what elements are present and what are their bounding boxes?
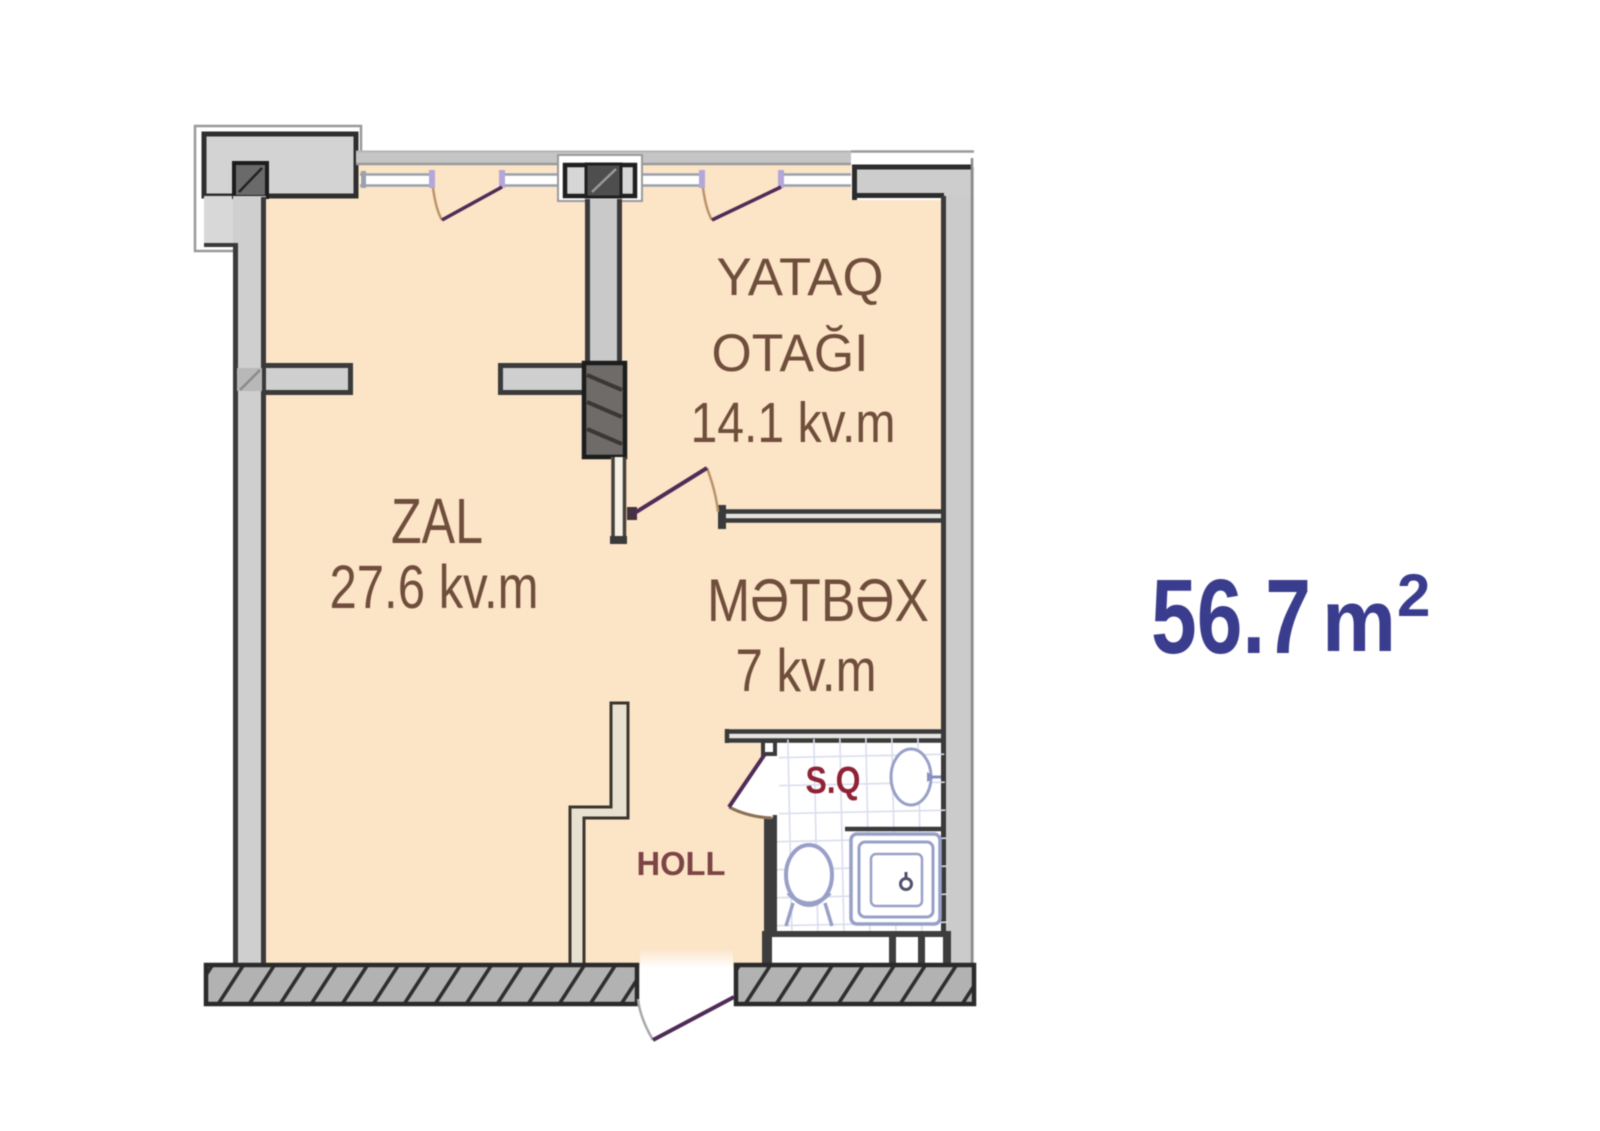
- svg-text:56.7: 56.7: [1151, 558, 1311, 676]
- svg-text:14.1 kv.m: 14.1 kv.m: [691, 391, 896, 455]
- svg-text:S.Q: S.Q: [806, 760, 861, 802]
- svg-text:7 kv.m: 7 kv.m: [736, 637, 877, 704]
- svg-text:MƏTBƏX: MƏTBƏX: [707, 567, 929, 634]
- svg-text:OTAĞI: OTAĞI: [712, 324, 869, 383]
- svg-text:m: m: [1322, 571, 1396, 670]
- svg-text:YATAQ: YATAQ: [717, 248, 884, 307]
- svg-text:ZAL: ZAL: [391, 485, 483, 557]
- svg-text:27.6 kv.m: 27.6 kv.m: [330, 553, 539, 621]
- svg-text:HOLL: HOLL: [637, 845, 726, 882]
- svg-text:2: 2: [1397, 562, 1430, 629]
